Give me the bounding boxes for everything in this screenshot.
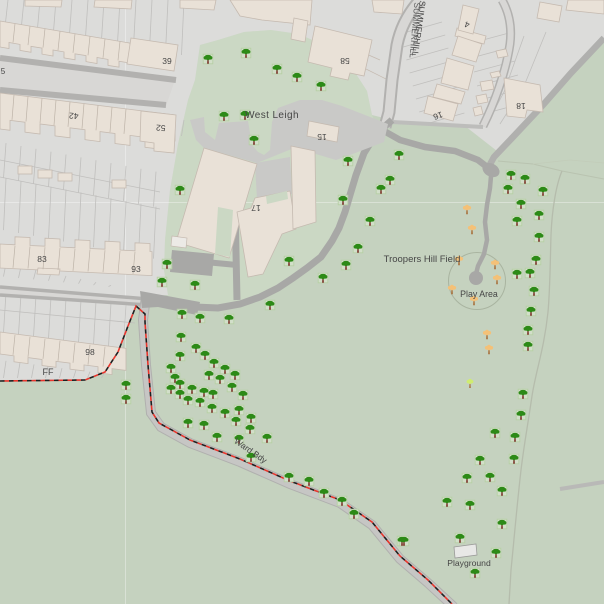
svg-text:52: 52 xyxy=(155,123,166,134)
svg-text:42: 42 xyxy=(68,111,79,122)
svg-text:18: 18 xyxy=(516,101,526,111)
svg-text:Play Area: Play Area xyxy=(460,289,498,299)
svg-text:17: 17 xyxy=(251,203,261,213)
svg-text:93: 93 xyxy=(131,264,141,274)
svg-text:FF: FF xyxy=(43,367,54,377)
svg-text:39: 39 xyxy=(162,56,172,66)
svg-text:98: 98 xyxy=(85,347,95,357)
svg-text:Playground: Playground xyxy=(447,558,491,568)
svg-text:5: 5 xyxy=(1,67,6,76)
svg-text:West Leigh: West Leigh xyxy=(245,110,299,121)
svg-text:Troopers Hill Field: Troopers Hill Field xyxy=(384,254,461,265)
svg-text:15: 15 xyxy=(317,132,327,142)
svg-text:58: 58 xyxy=(340,56,350,66)
svg-text:83: 83 xyxy=(37,254,47,264)
